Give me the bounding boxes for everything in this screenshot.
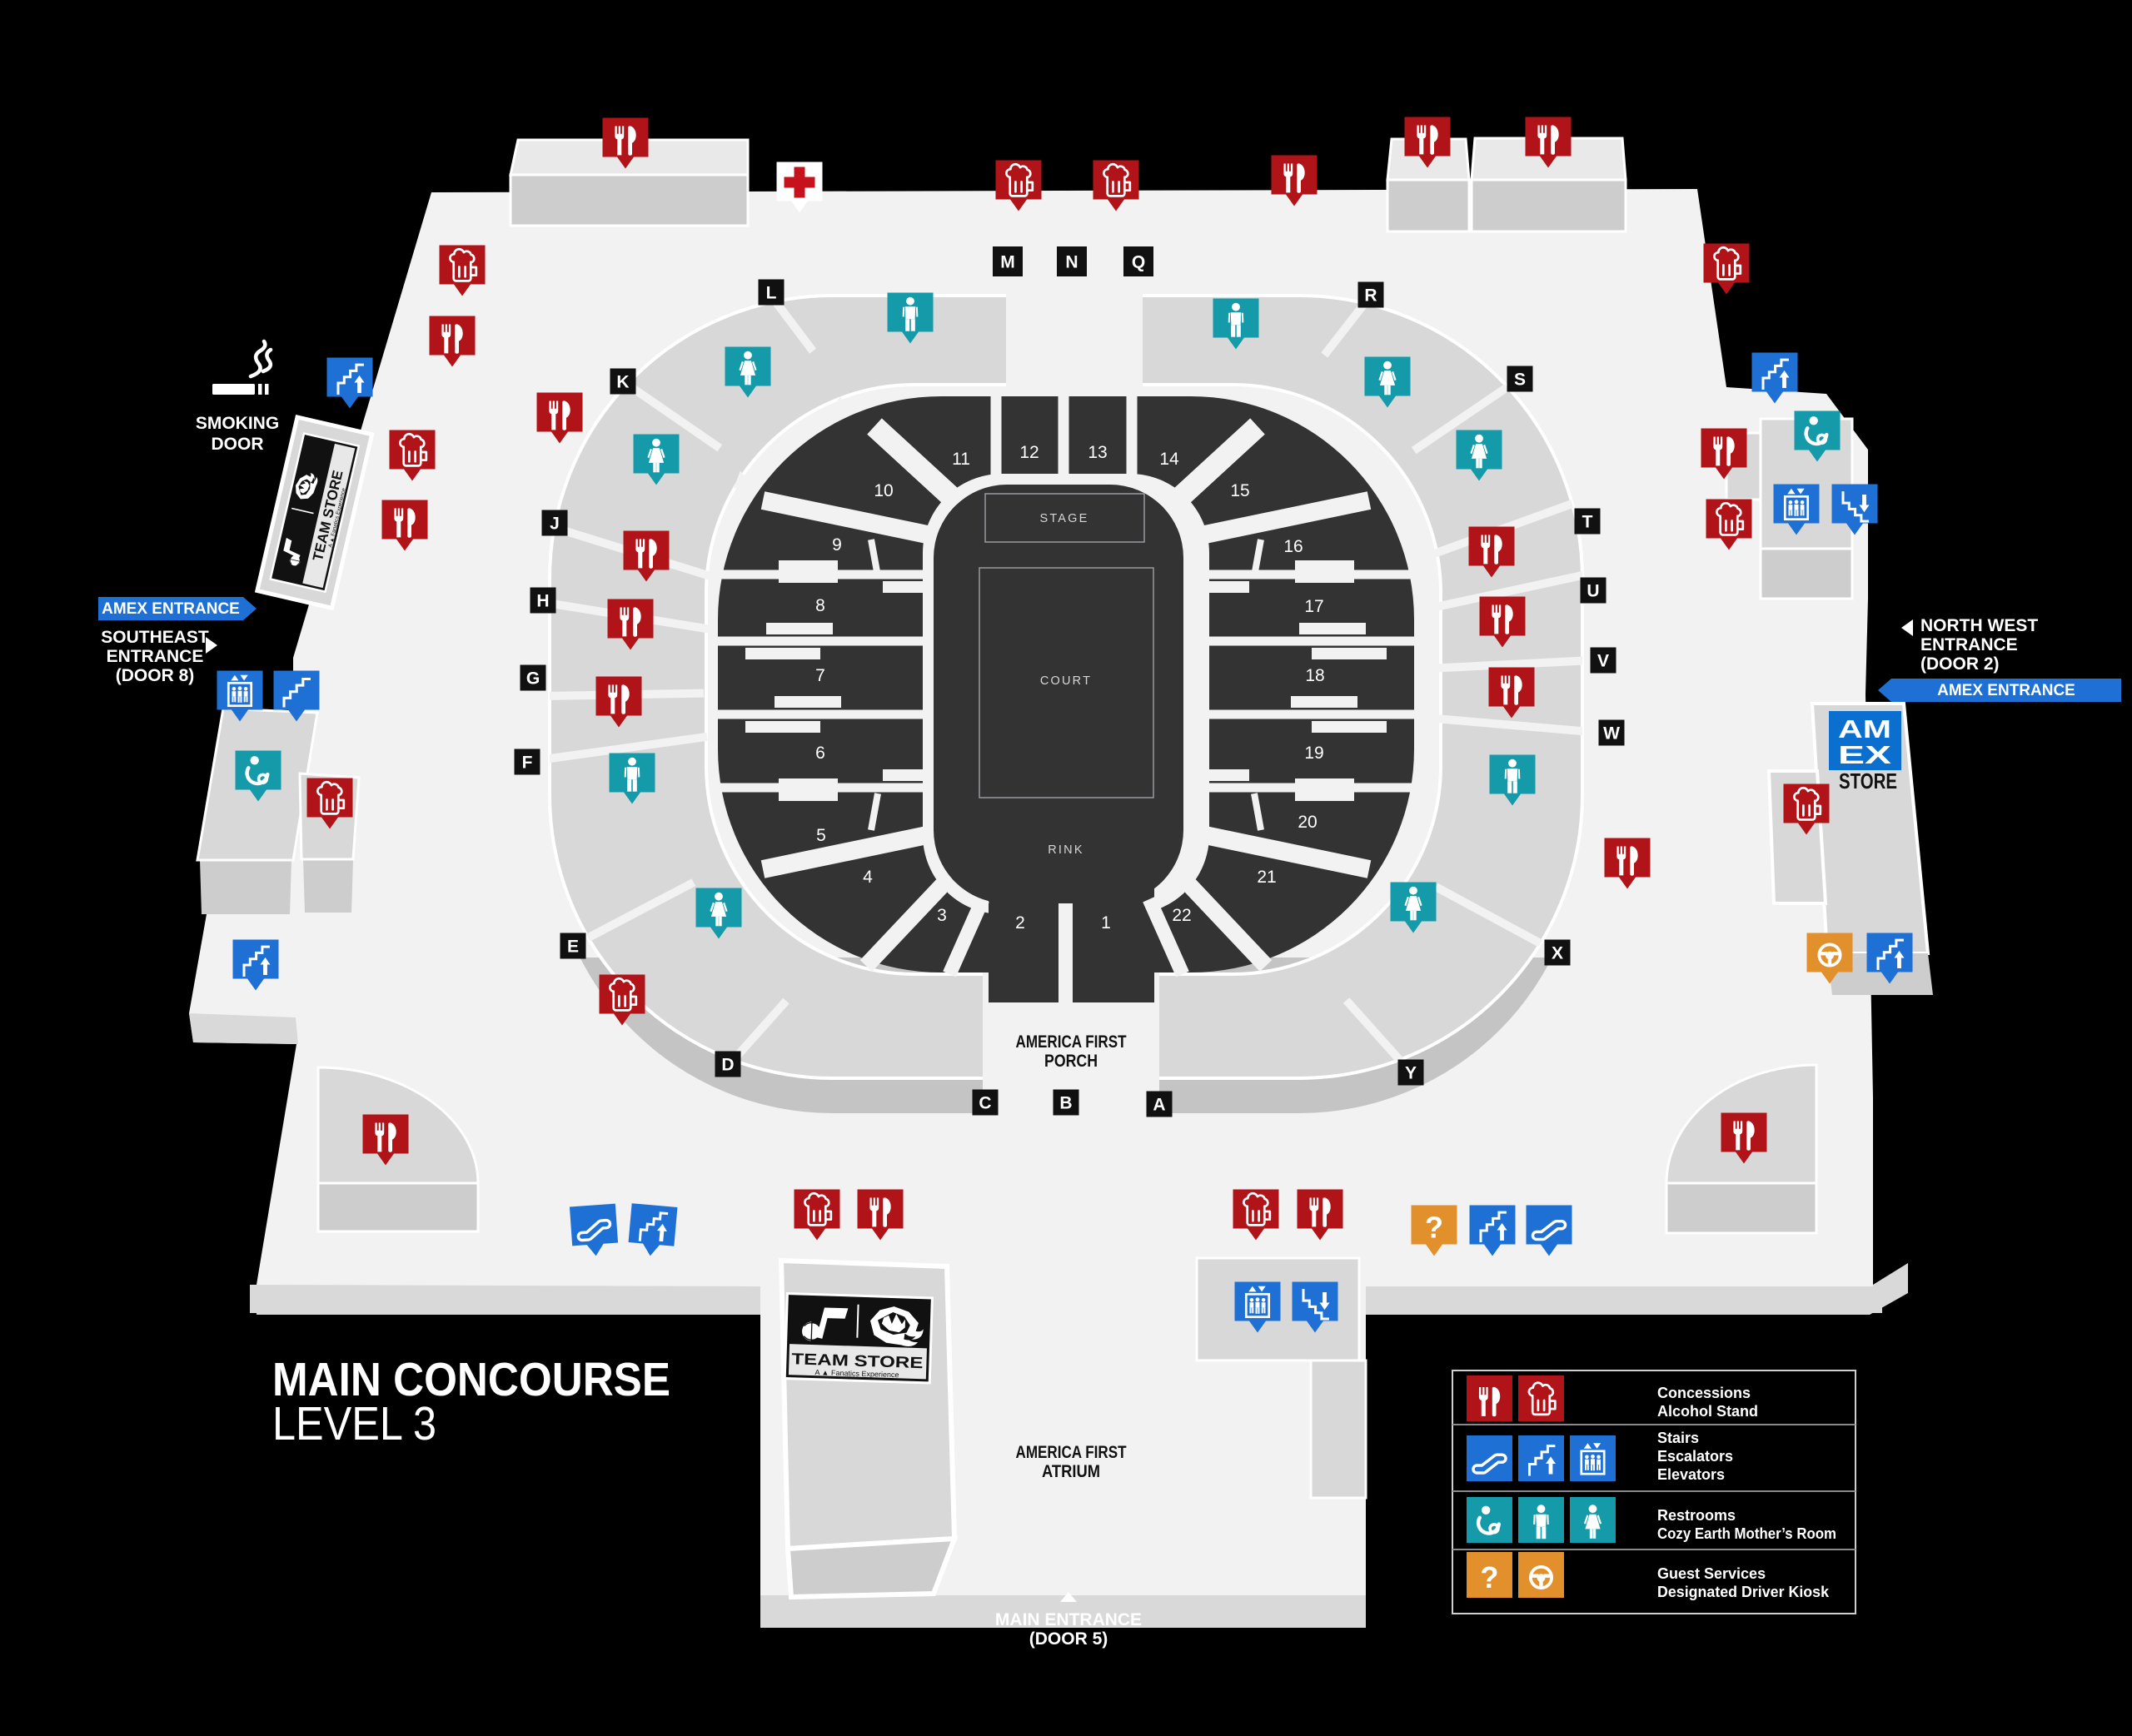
svg-text:T: T — [1582, 513, 1593, 532]
svg-text:Alcohol Stand: Alcohol Stand — [1657, 1403, 1758, 1420]
svg-text:S: S — [1514, 371, 1526, 390]
svg-text:(DOOR 5): (DOOR 5) — [1029, 1629, 1108, 1649]
svg-text:AMERICA FIRST: AMERICA FIRST — [1016, 1032, 1127, 1052]
svg-text:L: L — [766, 284, 777, 303]
svg-text:6: 6 — [815, 744, 825, 763]
svg-text:H: H — [536, 592, 549, 611]
svg-text:12: 12 — [1019, 443, 1039, 462]
svg-text:LEVEL 3: LEVEL 3 — [272, 1397, 436, 1450]
svg-text:Stairs: Stairs — [1657, 1430, 1699, 1446]
svg-text:W: W — [1603, 724, 1620, 744]
svg-text:D: D — [721, 1056, 734, 1075]
svg-text:R: R — [1364, 286, 1377, 306]
svg-text:J: J — [550, 515, 560, 534]
svg-text:V: V — [1597, 652, 1609, 671]
svg-text:5: 5 — [816, 826, 826, 845]
svg-text:Y: Y — [1405, 1064, 1417, 1083]
svg-text:10: 10 — [874, 481, 893, 500]
svg-text:SMOKING: SMOKING — [196, 414, 279, 433]
svg-text:Concessions: Concessions — [1657, 1385, 1751, 1401]
svg-text:SOUTHEAST: SOUTHEAST — [101, 628, 209, 647]
svg-text:G: G — [526, 669, 540, 689]
svg-text:16: 16 — [1283, 537, 1303, 556]
svg-text:EX: EX — [1838, 740, 1891, 769]
svg-text:ENTRANCE: ENTRANCE — [107, 647, 204, 666]
svg-text:F: F — [522, 754, 533, 773]
svg-text:Cozy Earth Mother’s Room: Cozy Earth Mother’s Room — [1657, 1525, 1836, 1542]
svg-text:(DOOR 8): (DOOR 8) — [116, 666, 195, 685]
svg-text:B: B — [1059, 1094, 1072, 1113]
svg-text:3: 3 — [937, 906, 947, 925]
svg-text:E: E — [567, 938, 579, 957]
svg-text:ENTRANCE: ENTRANCE — [1920, 635, 2018, 654]
svg-text:U: U — [1587, 582, 1599, 601]
svg-text:AMERICA FIRST: AMERICA FIRST — [1016, 1443, 1127, 1462]
svg-text:22: 22 — [1172, 906, 1191, 925]
svg-text:RINK: RINK — [1048, 843, 1083, 857]
svg-text:STAGE: STAGE — [1039, 512, 1088, 525]
svg-text:9: 9 — [832, 535, 842, 555]
svg-text:19: 19 — [1304, 744, 1323, 763]
svg-text:ATRIUM: ATRIUM — [1042, 1462, 1100, 1481]
svg-text:15: 15 — [1230, 481, 1249, 500]
svg-text:Designated Driver Kiosk: Designated Driver Kiosk — [1657, 1584, 1830, 1600]
svg-text:Q: Q — [1132, 253, 1145, 272]
svg-text:2: 2 — [1015, 913, 1025, 933]
svg-text:AMEX ENTRANCE: AMEX ENTRANCE — [102, 600, 240, 618]
svg-text:8: 8 — [815, 596, 825, 615]
svg-text:NORTH WEST: NORTH WEST — [1920, 616, 2038, 635]
svg-text:(DOOR 2): (DOOR 2) — [1920, 654, 2000, 674]
svg-text:4: 4 — [863, 868, 873, 887]
svg-text:X: X — [1552, 944, 1563, 963]
svg-text:14: 14 — [1159, 450, 1179, 469]
svg-text:C: C — [979, 1094, 991, 1113]
svg-text:PORCH: PORCH — [1044, 1052, 1098, 1071]
svg-text:Guest Services: Guest Services — [1657, 1565, 1766, 1582]
svg-text:1: 1 — [1101, 913, 1111, 933]
svg-text:17: 17 — [1304, 597, 1323, 616]
svg-text:DOOR: DOOR — [212, 435, 264, 454]
svg-text:AMEX ENTRANCE: AMEX ENTRANCE — [1937, 682, 2075, 699]
svg-text:K: K — [616, 373, 629, 392]
svg-text:18: 18 — [1305, 666, 1324, 685]
svg-text:Escalators: Escalators — [1657, 1448, 1733, 1465]
svg-text:MAIN ENTRANCE: MAIN ENTRANCE — [995, 1610, 1142, 1629]
svg-text:M: M — [1000, 253, 1015, 272]
svg-text:N: N — [1065, 253, 1078, 272]
svg-text:20: 20 — [1298, 813, 1317, 832]
svg-text:COURT: COURT — [1040, 674, 1092, 688]
svg-text:11: 11 — [952, 450, 970, 469]
svg-text:7: 7 — [815, 666, 825, 685]
svg-text:Elevators: Elevators — [1657, 1466, 1725, 1483]
svg-text:13: 13 — [1088, 443, 1107, 462]
svg-text:A: A — [1153, 1096, 1165, 1115]
svg-text:Restrooms: Restrooms — [1657, 1507, 1736, 1524]
svg-text:STORE: STORE — [1839, 769, 1897, 793]
svg-text:21: 21 — [1257, 868, 1276, 887]
svg-text:AM: AM — [1838, 714, 1891, 744]
